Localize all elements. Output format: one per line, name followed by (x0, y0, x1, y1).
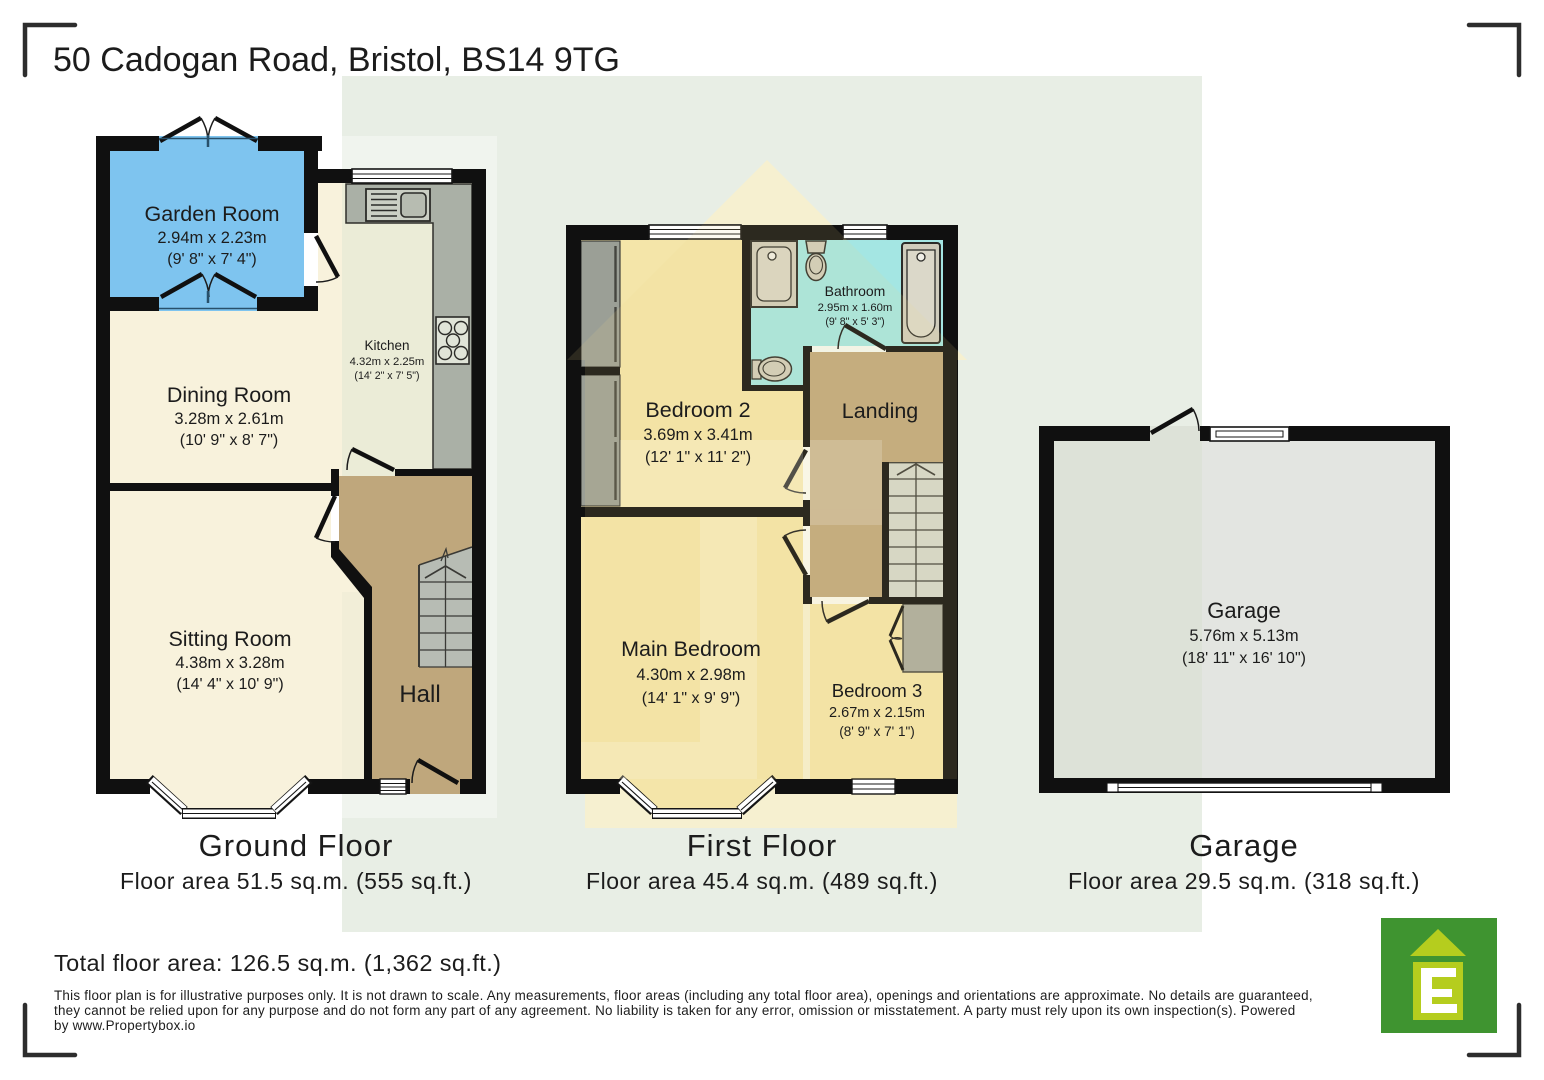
svg-text:Main Bedroom: Main Bedroom (621, 637, 761, 661)
svg-text:they cannot be relied upon for: they cannot be relied upon for any purpo… (54, 1003, 1295, 1018)
svg-text:Bedroom 2: Bedroom 2 (645, 398, 750, 422)
svg-text:Dining Room: Dining Room (167, 383, 291, 407)
svg-text:2.95m x 1.60m: 2.95m x 1.60m (818, 302, 893, 314)
svg-text:Garage: Garage (1189, 828, 1298, 863)
svg-text:Floor area 45.4 sq.m. (489 sq.: Floor area 45.4 sq.m. (489 sq.ft.) (586, 868, 938, 894)
svg-text:by www.Propertybox.io: by www.Propertybox.io (54, 1018, 195, 1033)
svg-text:5.76m x 5.13m: 5.76m x 5.13m (1189, 627, 1298, 645)
svg-text:Kitchen: Kitchen (364, 338, 409, 353)
svg-text:3.69m x 3.41m: 3.69m x 3.41m (643, 426, 752, 444)
svg-text:(10' 9" x 8' 7"): (10' 9" x 8' 7") (180, 432, 278, 449)
svg-text:Garden Room: Garden Room (144, 202, 279, 226)
svg-text:Floor area 51.5 sq.m. (555 sq.: Floor area 51.5 sq.m. (555 sq.ft.) (120, 868, 472, 894)
svg-text:Garage: Garage (1207, 598, 1280, 623)
svg-text:Bathroom: Bathroom (825, 283, 886, 299)
svg-text:3.28m x 2.61m: 3.28m x 2.61m (174, 410, 283, 428)
svg-text:Landing: Landing (842, 399, 919, 423)
svg-text:First Floor: First Floor (687, 828, 838, 863)
svg-text:Floor area 29.5 sq.m. (318 sq.: Floor area 29.5 sq.m. (318 sq.ft.) (1068, 868, 1420, 894)
svg-text:Ground Floor: Ground Floor (199, 828, 394, 863)
svg-text:Sitting Room: Sitting Room (168, 627, 291, 651)
svg-text:Total floor area: 126.5 sq.m.: Total floor area: 126.5 sq.m. (1,362 sq.… (54, 950, 501, 976)
svg-text:Bedroom 3: Bedroom 3 (832, 680, 923, 701)
svg-text:(14' 1" x 9' 9"): (14' 1" x 9' 9") (642, 690, 740, 707)
svg-text:(18' 11" x 16' 10"): (18' 11" x 16' 10") (1182, 650, 1306, 667)
svg-text:(12' 1" x 11' 2"): (12' 1" x 11' 2") (645, 449, 751, 466)
svg-text:(9' 8" x 7' 4"): (9' 8" x 7' 4") (167, 251, 257, 268)
svg-text:2.94m x 2.23m: 2.94m x 2.23m (157, 229, 266, 247)
svg-text:This floor plan is for illustr: This floor plan is for illustrative purp… (54, 988, 1313, 1003)
svg-text:(9' 8" x 5' 3"): (9' 8" x 5' 3") (825, 316, 884, 328)
svg-text:50 Cadogan Road, Bristol, BS14: 50 Cadogan Road, Bristol, BS14 9TG (53, 41, 620, 79)
svg-text:4.32m x 2.25m: 4.32m x 2.25m (350, 356, 425, 368)
svg-text:4.38m x 3.28m: 4.38m x 3.28m (175, 654, 284, 672)
svg-text:4.30m x 2.98m: 4.30m x 2.98m (636, 666, 745, 684)
svg-text:(8' 9" x 7' 1"): (8' 9" x 7' 1") (839, 724, 915, 739)
svg-text:(14' 4" x 10' 9"): (14' 4" x 10' 9") (176, 676, 283, 693)
svg-text:Hall: Hall (399, 681, 440, 708)
svg-text:(14' 2" x 7' 5"): (14' 2" x 7' 5") (354, 370, 419, 382)
svg-text:2.67m x 2.15m: 2.67m x 2.15m (829, 705, 925, 721)
